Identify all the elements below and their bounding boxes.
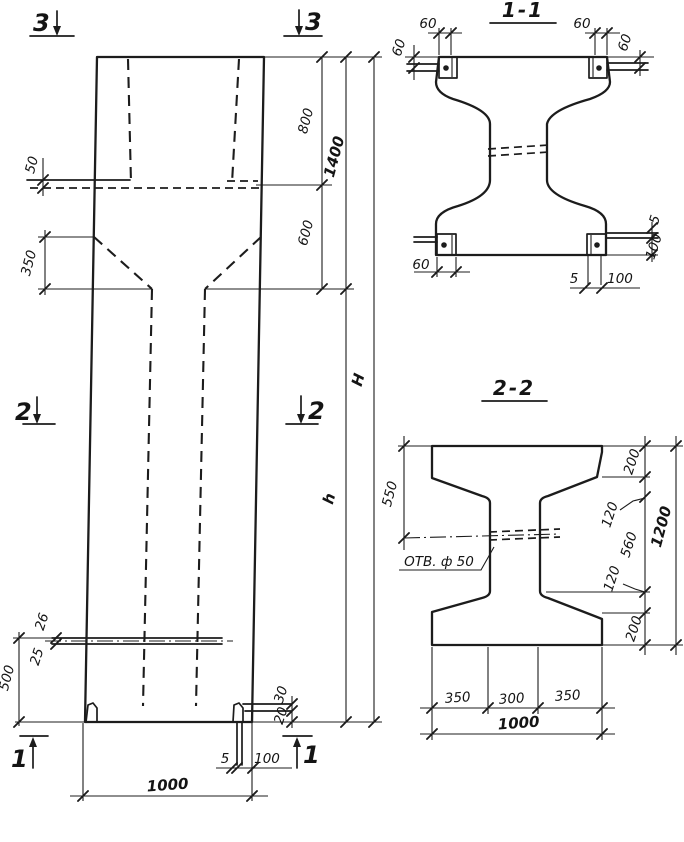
ledge-dashed-line (30, 181, 261, 188)
marker-1-left-arrow-icon (29, 737, 37, 747)
dim-500-label: 500 (0, 663, 18, 692)
marker-3-left-arrow-icon (53, 26, 61, 36)
marker-2-left-label: 2 (15, 398, 32, 426)
dim-1200-label: 1200 (647, 504, 675, 549)
dim-60-bottom-left: 60 (412, 257, 429, 273)
section-2-2-view: 2-2 ОТВ. ф 50 550 200 120 560 120 200 12… (379, 376, 683, 740)
marker-2-right-arrow-icon (297, 414, 305, 424)
marker-1-left-label: 1 (11, 745, 28, 773)
section-1-1-title: 1-1 (502, 0, 544, 22)
section-1-1-outline (436, 57, 610, 255)
marker-2-right-label: 2 (308, 397, 325, 425)
section-marker-2-right: 2 (286, 396, 325, 425)
base-foot-right (233, 703, 243, 722)
dim-800-label: 800 (295, 106, 317, 135)
dim-5-side: 5 (646, 213, 664, 226)
marker-3-right-label: 3 (305, 8, 322, 36)
dim-60-right: 60 (615, 32, 636, 53)
dim-600-label: 600 (295, 218, 317, 247)
section-2-2-outline (432, 446, 602, 645)
hole-label: ОТВ. ф 50 (404, 554, 474, 570)
dim-5-label: 5 (221, 751, 230, 767)
dim-25-label: 25 (27, 646, 48, 667)
anchor-dot-icon (441, 242, 447, 248)
dim-120-top: 120 (599, 500, 622, 529)
marker-1-right-arrow-icon (293, 737, 301, 747)
drawing-sheet: 3 3 2 2 1 1 50 35 (0, 0, 684, 842)
section-2-2-hole-axis (404, 534, 560, 538)
anchor-dot-icon (443, 65, 449, 71)
anchor-plate-below-base (237, 722, 242, 765)
dim-60-top-right: 60 (573, 16, 590, 32)
dim-1000-label: 1000 (146, 775, 189, 796)
section-1-1-hole-dashes (488, 145, 549, 156)
dim-30-label: 30 (271, 684, 292, 705)
column-outline (85, 57, 264, 722)
section-marker-3-left: 3 (30, 9, 74, 37)
marker-2-left-arrow-icon (33, 414, 41, 424)
dim-26-label: 26 (32, 611, 53, 632)
embedded-angle-top-right (589, 57, 648, 78)
section-1-1-ext-lines (405, 28, 658, 288)
cap-hidden-lines (128, 59, 239, 183)
angle-leg-lines (414, 237, 437, 242)
dim-50-label: 50 (22, 155, 42, 176)
section-marker-1-right: 1 (283, 736, 320, 769)
dim-350-left: 350 (444, 689, 471, 707)
dim-200-top: 200 (621, 447, 644, 476)
taper-hidden-lines (94, 237, 261, 289)
base-foot-left (86, 703, 97, 722)
dim-100-bottom: 100 (607, 271, 633, 287)
dim-1000-label-section: 1000 (497, 713, 540, 734)
anchor-dot-icon (594, 242, 600, 248)
dim-100-side: 100 (643, 232, 666, 261)
anchor-dot-icon (596, 65, 602, 71)
dim-350-right: 350 (554, 687, 581, 705)
dim-h-label: h (319, 491, 339, 506)
section-marker-1-left: 1 (11, 736, 48, 773)
dim-5-bottom: 5 (570, 271, 579, 287)
dim-60-top-left: 60 (419, 16, 436, 32)
marker-1-right-label: 1 (303, 741, 320, 769)
dim-200-bottom: 200 (623, 614, 646, 643)
dim-1400-label: 1400 (320, 134, 348, 179)
section-marker-2-left: 2 (15, 397, 55, 426)
dim-120-bottom: 120 (601, 564, 624, 593)
dim-H-label: Н (348, 371, 369, 388)
dim-350-label: 350 (18, 248, 40, 277)
marker-3-left-label: 3 (33, 9, 50, 37)
dim-560-label: 560 (618, 530, 641, 559)
dim-550-label: 550 (379, 479, 401, 508)
dim-300-label: 300 (498, 690, 525, 708)
dim-100-label: 100 (254, 751, 280, 767)
column-working-drawing: 3 3 2 2 1 1 50 35 (0, 0, 684, 842)
section-2-2-title: 2-2 (493, 376, 535, 400)
section-marker-3-right: 3 (284, 8, 322, 36)
section-1-1-view: 1-1 (389, 0, 666, 293)
elevation-view: 3 3 2 2 1 1 50 35 (0, 8, 382, 801)
dim-60-left: 60 (389, 37, 410, 58)
marker-3-right-arrow-icon (295, 26, 303, 36)
dim-lines-left (19, 158, 45, 726)
